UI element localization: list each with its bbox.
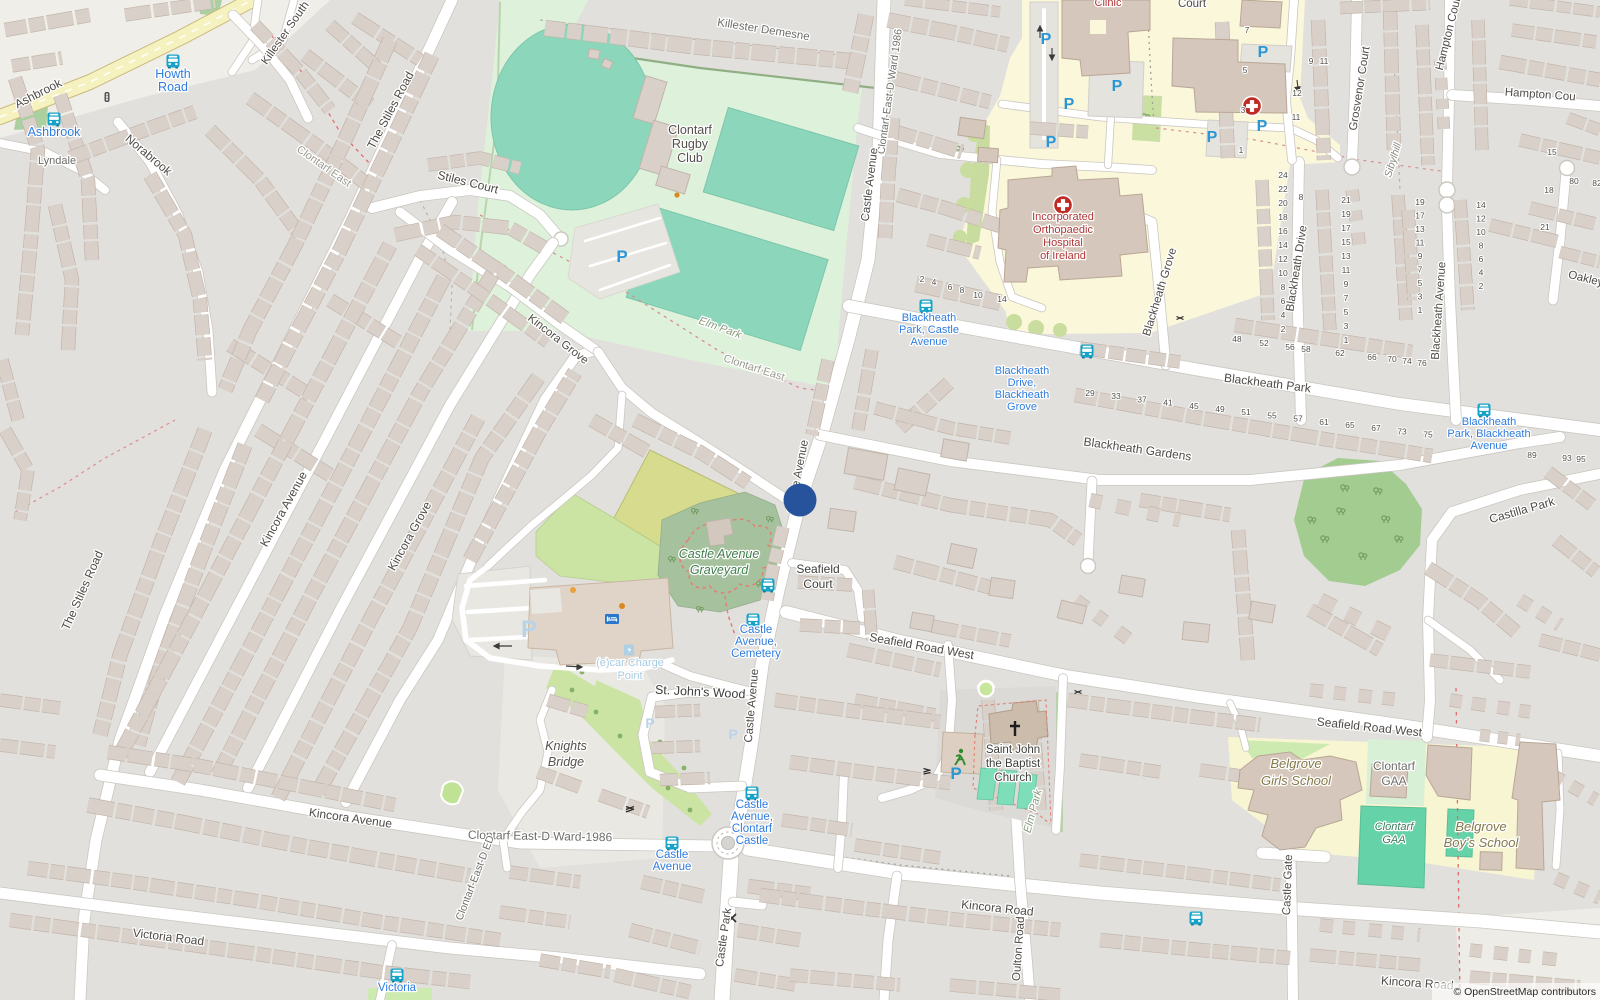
svg-text:Castle: Castle [736, 835, 769, 847]
svg-text:Castle Gate: Castle Gate [1281, 854, 1295, 915]
svg-text:16: 16 [1278, 226, 1288, 236]
svg-text:52: 52 [1259, 338, 1269, 348]
svg-text:14: 14 [1278, 240, 1288, 250]
svg-text:93: 93 [1562, 453, 1572, 463]
svg-text:1: 1 [1344, 335, 1349, 345]
svg-text:22: 22 [1278, 184, 1288, 194]
svg-text:Boy's School: Boy's School [1444, 835, 1520, 850]
svg-text:8: 8 [960, 285, 965, 295]
svg-text:Clinic: Clinic [1095, 0, 1122, 9]
svg-text:7: 7 [1245, 25, 1250, 35]
svg-text:15: 15 [1341, 237, 1351, 247]
svg-text:P: P [521, 616, 537, 643]
svg-text:Avenue: Avenue [910, 336, 947, 348]
svg-text:Graveyard: Graveyard [690, 563, 749, 577]
svg-text:3: 3 [1344, 321, 1349, 331]
svg-text:Avenue: Avenue [1470, 440, 1507, 452]
svg-text:Avenue,: Avenue, [735, 636, 777, 648]
svg-text:73: 73 [1397, 426, 1407, 436]
svg-text:P: P [1258, 44, 1269, 61]
svg-text:Knights: Knights [545, 739, 587, 753]
svg-text:Blackheath: Blackheath [995, 365, 1049, 377]
svg-text:10: 10 [1278, 268, 1288, 278]
svg-text:Court: Court [803, 577, 833, 591]
svg-text:3: 3 [1241, 105, 1246, 115]
svg-text:Girls School: Girls School [1261, 773, 1332, 788]
svg-text:4: 4 [1281, 310, 1286, 320]
svg-text:Blackheath: Blackheath [902, 312, 956, 324]
svg-text:Howth: Howth [155, 67, 190, 81]
svg-text:56: 56 [1285, 342, 1295, 352]
svg-text:75: 75 [1423, 430, 1433, 440]
svg-text:11: 11 [1416, 238, 1425, 248]
svg-text:Orthopaedic: Orthopaedic [1033, 224, 1093, 236]
svg-text:P: P [616, 247, 627, 266]
svg-text:Cemetery: Cemetery [731, 648, 781, 660]
svg-text:Drive,: Drive, [1008, 377, 1037, 389]
svg-text:Court: Court [1178, 0, 1207, 10]
svg-text:Lyndale: Lyndale [38, 155, 76, 167]
svg-text:4: 4 [1479, 268, 1484, 278]
svg-text:3: 3 [1418, 292, 1423, 302]
svg-text:49: 49 [1215, 404, 1225, 414]
svg-text:55: 55 [1267, 410, 1277, 420]
svg-text:62: 62 [1335, 348, 1345, 358]
svg-text:Point: Point [617, 670, 642, 682]
svg-text:2: 2 [920, 274, 925, 284]
svg-text:P: P [1112, 78, 1123, 95]
svg-text:6: 6 [1281, 296, 1286, 306]
svg-text:of Ireland: of Ireland [1040, 250, 1086, 262]
svg-text:Clontarf: Clontarf [1373, 759, 1416, 773]
svg-text:the Baptist: the Baptist [986, 758, 1041, 770]
svg-text:Seafield: Seafield [796, 562, 839, 576]
svg-text:Castle Avenue: Castle Avenue [679, 547, 760, 561]
svg-text:9: 9 [1309, 56, 1314, 66]
svg-text:11: 11 [1292, 112, 1301, 122]
svg-text:Avenue: Avenue [653, 861, 692, 873]
svg-text:61: 61 [1319, 417, 1329, 427]
svg-text:51: 51 [1241, 407, 1251, 417]
svg-text:10: 10 [973, 290, 983, 300]
svg-text:Ashbrook: Ashbrook [28, 125, 82, 139]
svg-text:7: 7 [1418, 265, 1423, 275]
svg-text:18: 18 [1544, 185, 1554, 195]
svg-text:Castle: Castle [740, 624, 773, 636]
svg-text:P: P [950, 764, 961, 783]
svg-text:82: 82 [1592, 178, 1600, 188]
svg-text:13: 13 [1415, 224, 1425, 234]
svg-text:45: 45 [1189, 401, 1199, 411]
svg-text:P: P [1041, 31, 1052, 48]
svg-text:74: 74 [1402, 356, 1412, 366]
svg-text:Clontarf: Clontarf [1375, 821, 1414, 833]
svg-text:Road: Road [158, 80, 188, 94]
svg-text:19: 19 [1341, 209, 1351, 219]
svg-text:GAA: GAA [1381, 774, 1406, 788]
svg-text:(e)car Charge: (e)car Charge [596, 657, 664, 669]
svg-text:2: 2 [1281, 324, 1286, 334]
svg-text:70: 70 [1387, 354, 1397, 364]
svg-text:9: 9 [1418, 251, 1423, 261]
svg-text:P: P [1257, 118, 1268, 135]
svg-text:P: P [1207, 129, 1218, 146]
svg-text:Club: Club [677, 151, 703, 165]
svg-text:5: 5 [1243, 65, 1248, 75]
svg-text:17: 17 [1341, 223, 1351, 233]
svg-text:37: 37 [1137, 394, 1147, 404]
svg-text:GAA: GAA [1382, 834, 1405, 846]
svg-text:2: 2 [1479, 281, 1484, 291]
svg-text:Blackheath: Blackheath [995, 389, 1049, 401]
svg-text:P: P [645, 715, 654, 731]
svg-text:4: 4 [932, 277, 937, 287]
svg-text:12: 12 [1476, 214, 1486, 224]
svg-text:1: 1 [1239, 145, 1244, 155]
svg-text:Rugby: Rugby [672, 137, 709, 151]
svg-text:Incorporated: Incorporated [1032, 211, 1094, 223]
svg-text:© OpenStreetMap contributors: © OpenStreetMap contributors [1453, 986, 1596, 998]
svg-text:12: 12 [1292, 88, 1302, 98]
svg-text:19: 19 [1415, 197, 1425, 207]
svg-text:Park, Castle: Park, Castle [899, 324, 959, 336]
svg-text:66: 66 [1367, 352, 1377, 362]
svg-text:Castle: Castle [656, 849, 689, 861]
svg-text:Castle: Castle [736, 799, 769, 811]
svg-text:Clontarf: Clontarf [668, 123, 712, 137]
svg-text:76: 76 [1417, 358, 1427, 368]
svg-text:15: 15 [1547, 147, 1557, 157]
svg-text:Victoria: Victoria [378, 982, 417, 994]
svg-text:65: 65 [1345, 420, 1355, 430]
svg-text:1: 1 [1418, 305, 1423, 315]
svg-text:18: 18 [1278, 212, 1288, 222]
svg-text:8: 8 [1479, 241, 1484, 251]
svg-text:17: 17 [1415, 211, 1425, 221]
svg-text:P: P [1046, 134, 1057, 151]
svg-text:95: 95 [1576, 454, 1586, 464]
svg-text:24: 24 [1278, 170, 1288, 180]
svg-text:20: 20 [1278, 198, 1288, 208]
svg-text:57: 57 [1293, 414, 1303, 424]
svg-text:58: 58 [1301, 344, 1311, 354]
svg-text:21: 21 [1341, 195, 1351, 205]
svg-text:13: 13 [1341, 251, 1351, 261]
svg-text:P: P [1064, 96, 1075, 113]
svg-text:21: 21 [1540, 222, 1550, 232]
svg-text:5: 5 [1344, 307, 1349, 317]
svg-text:80: 80 [1569, 176, 1579, 186]
svg-text:6: 6 [948, 282, 953, 292]
svg-text:12: 12 [1278, 254, 1288, 264]
svg-text:8: 8 [1299, 192, 1304, 202]
svg-text:29: 29 [1085, 388, 1095, 398]
svg-text:89: 89 [1527, 450, 1537, 460]
svg-text:11: 11 [1342, 265, 1351, 275]
svg-text:6: 6 [1479, 254, 1484, 264]
svg-text:67: 67 [1371, 423, 1381, 433]
svg-text:9: 9 [1344, 279, 1349, 289]
svg-text:14: 14 [997, 294, 1007, 304]
svg-text:Hospital: Hospital [1043, 237, 1083, 249]
svg-text:8: 8 [1281, 282, 1286, 292]
svg-text:P: P [728, 726, 737, 742]
svg-text:5: 5 [1418, 278, 1423, 288]
svg-text:48: 48 [1232, 334, 1242, 344]
svg-text:10: 10 [1476, 227, 1486, 237]
svg-text:Belgrove: Belgrove [1455, 819, 1506, 834]
svg-text:Grove: Grove [1007, 401, 1037, 413]
svg-text:Belgrove: Belgrove [1270, 756, 1321, 771]
svg-text:Bridge: Bridge [548, 755, 584, 769]
svg-text:Park, Blackheath: Park, Blackheath [1447, 428, 1530, 440]
svg-text:Blackheath: Blackheath [1462, 416, 1516, 428]
svg-text:14: 14 [1476, 200, 1486, 210]
svg-text:41: 41 [1163, 398, 1173, 408]
svg-text:11: 11 [1320, 56, 1329, 66]
svg-text:33: 33 [1111, 391, 1121, 401]
svg-text:7: 7 [1344, 293, 1349, 303]
svg-text:Clontarf: Clontarf [732, 823, 773, 835]
svg-text:Church: Church [994, 772, 1031, 784]
svg-text:Avenue,: Avenue, [731, 811, 773, 823]
svg-text:Saint John: Saint John [986, 744, 1040, 756]
